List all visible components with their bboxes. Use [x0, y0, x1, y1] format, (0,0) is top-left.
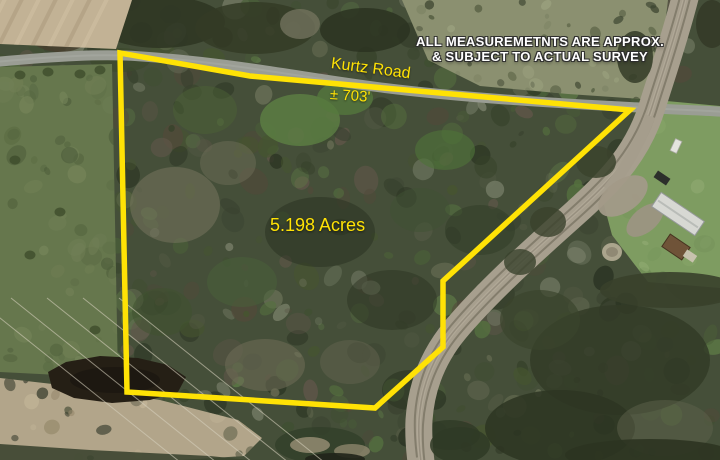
disclaimer-line-2: & SUBJECT TO ACTUAL SURVEY	[390, 49, 690, 64]
disclaimer-text: ALL MEASUREMETNTS ARE APPROX. & SUBJECT …	[390, 34, 690, 64]
road-frontage-label: ± 703'	[329, 86, 370, 106]
aerial-property-listing-image: Kurtz Road ± 703' 5.198 Acres ALL MEASUR…	[0, 0, 720, 460]
acreage-label: 5.198 Acres	[270, 215, 365, 236]
disclaimer-line-1: ALL MEASUREMETNTS ARE APPROX.	[390, 34, 690, 49]
